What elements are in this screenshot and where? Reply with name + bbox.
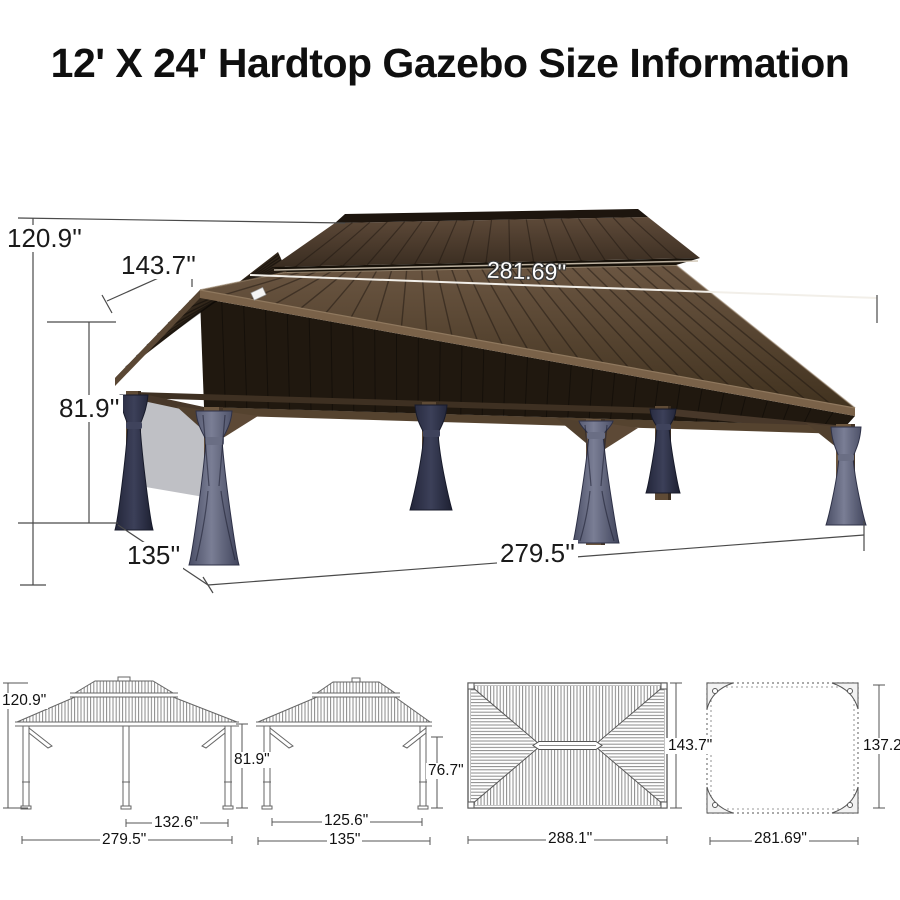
page-title: 12' X 24' Hardtop Gazebo Size Informatio… bbox=[0, 40, 900, 87]
front-elevation-total-height: 120.9" bbox=[0, 693, 48, 709]
gazebo-3d-figure: 120.9'' 143.7'' 281.69'' 81.9'' 135'' 27… bbox=[0, 195, 900, 655]
front-elevation-inner-span: 132.6" bbox=[152, 815, 200, 831]
frame-plan-diagram bbox=[707, 683, 885, 845]
roof-plan-diagram bbox=[468, 683, 682, 844]
size-diagram-strip: 120.9" 81.9" 132.6" 279.5" 76.7" 125.6" … bbox=[0, 660, 900, 900]
roof-plan-width: 143.7" bbox=[666, 738, 714, 754]
dim-base-long: 279.5'' bbox=[497, 540, 578, 567]
side-elevation-total-width: 135" bbox=[327, 832, 362, 848]
side-elevation-post-height: 76.7" bbox=[426, 763, 466, 779]
dim-roof-side: 143.7'' bbox=[118, 252, 199, 279]
gazebo-size-infographic: 12' X 24' Hardtop Gazebo Size Informatio… bbox=[0, 0, 900, 900]
roof-plan-length: 288.1" bbox=[546, 831, 594, 847]
side-elevation-inner-width: 125.6" bbox=[322, 813, 370, 829]
frame-plan-length: 281.69" bbox=[752, 831, 809, 847]
dim-roof-long: 281.69'' bbox=[484, 258, 570, 285]
front-elevation-post-height: 81.9" bbox=[232, 752, 272, 768]
roof-fascia-left bbox=[115, 290, 200, 386]
diagram-line-art bbox=[0, 660, 900, 900]
front-elevation-total-width: 279.5" bbox=[100, 832, 148, 848]
frame-plan-width: 137.2" bbox=[861, 738, 900, 754]
dim-post-height: 81.9'' bbox=[56, 395, 123, 422]
dim-base-side: 135'' bbox=[124, 542, 183, 569]
dim-total-height: 120.9'' bbox=[4, 225, 85, 252]
